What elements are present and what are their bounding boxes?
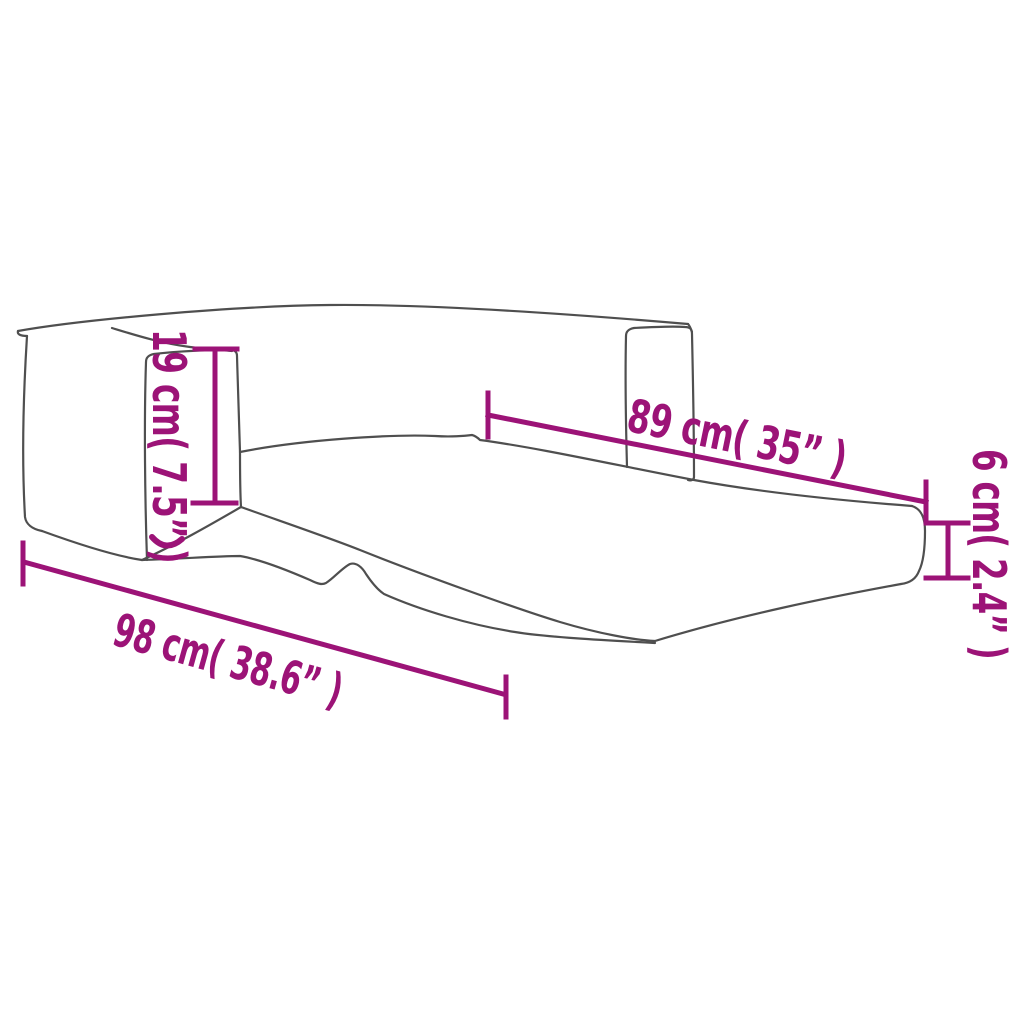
dimension-inner-length-label: 89 cm( 35” ) [623,388,851,485]
back-panel-top-edge [18,305,688,331]
dimension-inner-length: 89 cm( 35” ) [488,388,926,523]
back-panel-left-front-edge [23,336,42,531]
sofa-dimension-drawing: 19 cm( 7.5” ) 89 cm( 35” ) 6 cm( 2.4” ) … [0,0,1024,1024]
dimension-annotations: 19 cm( 7.5” ) 89 cm( 35” ) 6 cm( 2.4” ) … [23,329,1016,717]
dimension-mattress-thickness-label: 6 cm( 2.4” ) [962,449,1016,659]
dimension-diagram: 19 cm( 7.5” ) 89 cm( 35” ) 6 cm( 2.4” ) … [0,0,1024,1024]
dimension-armrest-height: 19 cm( 7.5” ) [142,329,237,563]
mattress-tip-edge [901,506,925,584]
dimension-mattress-thickness-line [926,523,968,578]
mattress-near-edge-right [655,584,901,641]
dimension-mattress-thickness: 6 cm( 2.4” ) [926,449,1016,659]
dimension-armrest-height-line [193,349,237,503]
mattress-fold-crease [241,507,655,641]
dimension-total-length: 98 cm( 38.6” ) [23,543,506,717]
dimension-armrest-height-label: 19 cm( 7.5” ) [142,329,196,563]
base-bottom-edge [42,531,142,560]
